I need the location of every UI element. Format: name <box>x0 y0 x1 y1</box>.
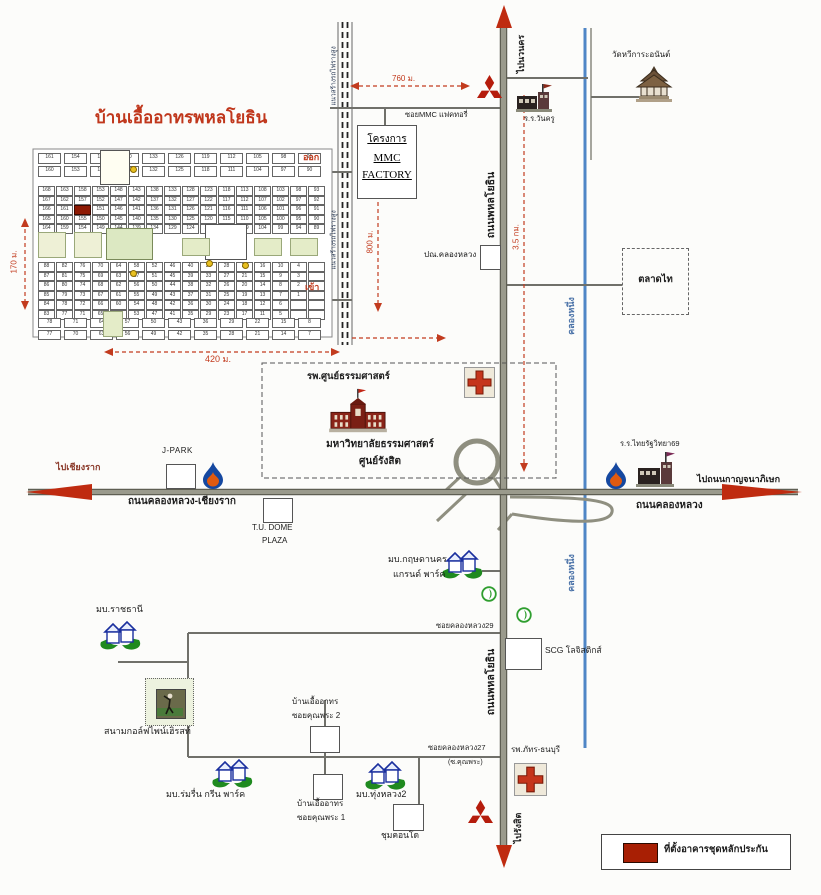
chum-condo-label: ชุมคอนโด <box>381 831 419 840</box>
estate-plot: 37 <box>182 291 199 301</box>
estate-plot: 21 <box>236 272 253 282</box>
estate-plot: 70 <box>92 262 109 272</box>
estate-plot: 60 <box>110 300 127 310</box>
estate-plot: 81 <box>56 272 73 282</box>
estate-plot: 92 <box>308 196 325 206</box>
estate-plot: 148 <box>110 186 127 196</box>
legend-swatch <box>623 843 658 863</box>
temple-icon <box>631 66 677 107</box>
estate-plot: 90 <box>308 215 325 225</box>
estate-plot: 96 <box>290 205 307 215</box>
tu-hospital-cross-icon <box>464 367 495 398</box>
estate-plot: 63 <box>110 272 127 282</box>
estate-plot: 166 <box>38 205 55 215</box>
khlongluang-chiangrak-label: ถนนคลองหลวง-เชียงราก <box>128 496 236 507</box>
estate-plot: 28 <box>218 262 235 272</box>
post-office-box <box>480 245 501 270</box>
estate-plot: 78 <box>56 300 73 310</box>
estate-park-block <box>106 228 153 260</box>
estate-plot: 105 <box>246 153 269 164</box>
estate-plot: 140 <box>128 215 145 225</box>
golf-course-box <box>145 678 194 726</box>
estate-plot: 78 <box>38 318 61 328</box>
estate-plot: 7 <box>298 330 321 340</box>
estate-plot: 125 <box>182 215 199 225</box>
map-canvas: 1611541471401331261191121059891160153146… <box>0 0 821 895</box>
estate-plot: 73 <box>74 291 91 301</box>
jpark-box <box>166 464 196 489</box>
estate-plot: 79 <box>56 291 73 301</box>
estate-plot: 50 <box>146 281 163 291</box>
soi-27-alt-label: (ซ.คุณพระ) <box>448 759 483 767</box>
estate-plot: 36 <box>194 318 217 328</box>
estate-plot: 28 <box>220 330 243 340</box>
estate-plot: 118 <box>218 186 235 196</box>
estate-plot: 32 <box>200 281 217 291</box>
estate-plot: 43 <box>168 318 191 328</box>
estate-green-block <box>290 238 318 256</box>
estate-plot: 125 <box>168 166 191 177</box>
estate-plot: 9 <box>272 272 289 282</box>
estate-plot: 110 <box>236 215 253 225</box>
estate-plot: 29 <box>220 318 243 328</box>
estate-plot: 8 <box>298 318 321 328</box>
estate-plot: 106 <box>254 205 271 215</box>
soi-27-label: ซอยคลองหลวง27 <box>428 744 486 752</box>
estate-plot: 158 <box>74 186 91 196</box>
estate-plot: 85 <box>38 291 55 301</box>
estate-green-block <box>38 232 66 258</box>
estate-title: บ้านเอื้ออาทรพหลโยธิน <box>95 109 267 128</box>
estate-plot: 168 <box>38 186 55 196</box>
temple-label: วัดหวีการะอนันต์ <box>612 51 670 60</box>
estate-plot: 120 <box>200 215 217 225</box>
krisda-label1: มบ.กฤษดานคร <box>388 555 447 565</box>
estate-plot: 137 <box>146 196 163 206</box>
thungluang-label: มบ.ทุ่งหลวง2 <box>356 790 406 800</box>
mmc-line2: MMC <box>358 152 416 164</box>
baan-eua2-label1: บ้านเอื้ออาทร <box>292 698 338 707</box>
estate-plot: 132 <box>142 166 165 177</box>
estate-yellow-dot <box>130 270 137 277</box>
ptt-station-icon <box>605 461 627 494</box>
estate-plot: 33 <box>200 272 217 282</box>
estate-entry-label: เข้า <box>305 283 319 293</box>
estate-plot: 131 <box>164 205 181 215</box>
ratchathani-village-icon <box>98 618 142 657</box>
tu-university-label1: มหาวิทยาลัยธรรมศาสตร์ <box>295 439 465 450</box>
baan-eua1-box <box>313 774 343 800</box>
estate-green-block <box>103 311 123 337</box>
estate-plot: 21 <box>246 330 269 340</box>
estate-plot: 154 <box>64 153 87 164</box>
soi-mmc-label: ซอยMMC แฟคทอรี่ <box>405 111 468 119</box>
estate-plot: 14 <box>272 330 295 340</box>
estate-plot: 54 <box>128 300 145 310</box>
to-rangsit-label: ไปรังสิต <box>514 813 524 844</box>
post-office-label: ปณ.คลองหลวง <box>424 251 476 260</box>
estate-plot: 94 <box>290 224 307 234</box>
estate-plot: 72 <box>74 300 91 310</box>
estate-plot: 74 <box>74 281 91 291</box>
estate-plot: 45 <box>164 272 181 282</box>
estate-plot: 25 <box>218 291 235 301</box>
estate-plot: 112 <box>220 153 243 164</box>
estate-plot: 93 <box>308 186 325 196</box>
romruen-label: มบ.ร่มรื่น กรีน พาร์ค <box>166 790 245 800</box>
tu-hospital-label: รพ.ศูนย์ธรรมศาสตร์ <box>307 372 390 382</box>
estate-plot: 40 <box>182 262 199 272</box>
estate-plot: 98 <box>290 186 307 196</box>
estate-plot: 62 <box>110 281 127 291</box>
estate-plot: 87 <box>38 272 55 282</box>
talad-thai-box: ตลาดไท <box>622 248 689 315</box>
estate-plot: 160 <box>38 166 61 177</box>
estate-plot: 130 <box>164 215 181 225</box>
tu-university-label2: ศูนย์รังสิต <box>295 456 465 467</box>
to-chiangrak-label: ไปเชียงราก <box>56 463 100 473</box>
tu-dome-box <box>263 498 293 523</box>
mmc-factory-box: โครงการ MMC FACTORY <box>357 125 417 199</box>
estate-plot: 99 <box>272 224 289 234</box>
estate-plot: 15 <box>254 272 271 282</box>
estate-yellow-dot <box>206 260 213 267</box>
estate-plot: 42 <box>168 330 191 340</box>
estate-plot: 8 <box>272 281 289 291</box>
estate-plot: 132 <box>164 196 181 206</box>
estate-plot: 20 <box>236 281 253 291</box>
estate-plot: 14 <box>254 281 271 291</box>
estate-plot: 15 <box>272 318 295 328</box>
estate-plot: 44 <box>164 281 181 291</box>
estate-plot: 98 <box>272 153 295 164</box>
phatara-hospital-label: รพ.ภัทร-ธนบุรี <box>511 746 560 755</box>
estate-plot: 18 <box>236 300 253 310</box>
estate-green-block <box>254 238 282 256</box>
estate-plot <box>308 262 325 272</box>
legend-box: ที่ตั้งอาคารชุดหลักประกัน <box>601 834 791 870</box>
bangchak-station-icon <box>516 607 532 628</box>
estate-plot: 146 <box>110 205 127 215</box>
to-navanakorn-label: ไปนวนคร <box>517 35 527 73</box>
estate-plot: 80 <box>56 281 73 291</box>
estate-plot: 6 <box>272 300 289 310</box>
estate-building-block <box>100 150 130 185</box>
estate-plot: 152 <box>92 196 109 206</box>
jpark-label: J-PARK <box>162 447 193 456</box>
estate-plot: 119 <box>194 153 217 164</box>
estate-plot: 35 <box>194 330 217 340</box>
estate-plot: 103 <box>272 186 289 196</box>
estate-plot: 112 <box>236 196 253 206</box>
krisda-label2: แกรนด์ พาร์ค <box>393 570 445 580</box>
estate-plot: 4 <box>290 262 307 272</box>
estate-plot <box>290 300 307 310</box>
estate-plot: 162 <box>56 196 73 206</box>
estate-plot: 155 <box>74 215 91 225</box>
estate-plot: 49 <box>142 330 165 340</box>
estate-plot: 111 <box>236 205 253 215</box>
estate-plot: 118 <box>194 166 217 177</box>
railway-label: แนวสร้างรถไฟรางสูง <box>330 46 337 105</box>
estate-plot: 30 <box>200 300 217 310</box>
khlongluang-road-label: ถนนคลองหลวง <box>636 500 703 511</box>
estate-plot: 64 <box>110 262 127 272</box>
scg-label: SCG โลจิสติกส์ <box>545 646 602 655</box>
dim-760-label: 760 ม. <box>392 75 415 84</box>
estate-plot: 82 <box>56 262 73 272</box>
estate-plot: 141 <box>128 205 145 215</box>
estate-plot: 90 <box>298 166 321 177</box>
estate-plot: 91 <box>308 205 325 215</box>
estate-plot: 46 <box>164 262 181 272</box>
estate-plot: 76 <box>74 262 91 272</box>
estate-plot: 102 <box>272 196 289 206</box>
estate-plot: 97 <box>290 196 307 206</box>
thairath-school-label: ร.ร.ไทยรัฐวิทยา69 <box>620 440 680 448</box>
estate-plot: 104 <box>246 166 269 177</box>
talad-thai-label: ตลาดไท <box>623 275 688 285</box>
estate-plot: 145 <box>110 215 127 225</box>
estate-plot: 121 <box>200 205 217 215</box>
estate-plot: 167 <box>38 196 55 206</box>
estate-plot: 12 <box>254 300 271 310</box>
estate-plot: 151 <box>92 205 109 215</box>
estate-plot: 126 <box>168 153 191 164</box>
phatara-hospital-cross-icon <box>514 763 547 796</box>
estate-plot: 51 <box>146 272 163 282</box>
estate-plot: 13 <box>254 291 271 301</box>
estate-green-block <box>182 238 210 256</box>
dim-800-label: 800 ม. <box>367 230 376 253</box>
estate-plot: 66 <box>92 300 109 310</box>
estate-yellow-dot <box>130 166 137 173</box>
collateral-plot-marker <box>74 205 91 215</box>
to-kanchanaphisek-label: ไปถนนกาญจนาภิเษก <box>697 475 780 485</box>
tu-dome-label1: T.U. DOME <box>252 524 292 533</box>
estate-plot: 43 <box>164 291 181 301</box>
ptt-station-icon <box>202 461 224 494</box>
soi-29-label: ซอยคลองหลวง29 <box>436 622 494 630</box>
ratchathani-label: มบ.ราชธานี <box>96 605 143 615</box>
estate-plot: 71 <box>64 318 87 328</box>
estate-plot: 133 <box>164 186 181 196</box>
estate-plot: 50 <box>142 318 165 328</box>
estate-plot: 24 <box>218 300 235 310</box>
estate-plot: 163 <box>56 186 73 196</box>
estate-plot: 7 <box>272 291 289 301</box>
arrow-south <box>496 845 512 868</box>
railway-line <box>338 22 352 345</box>
arrow-north <box>496 5 512 28</box>
estate-plot: 161 <box>38 153 61 164</box>
estate-green-block <box>74 232 102 258</box>
scg-box <box>505 638 542 670</box>
estate-plot: 105 <box>254 215 271 225</box>
bangchak-station-icon <box>481 586 497 607</box>
estate-plot: 70 <box>64 330 87 340</box>
railway-label: แนวสร้างรถไฟรางสูง <box>330 210 337 269</box>
estate-plot: 136 <box>146 205 163 215</box>
estate-height-label: 170 ม. <box>11 250 20 273</box>
tu-dome-label2: PLAZA <box>262 537 287 546</box>
estate-plot: 113 <box>236 186 253 196</box>
estate-plot: 19 <box>236 291 253 301</box>
phahonyothin-label: ถนนพหลโยธิน <box>486 649 498 715</box>
estate-plot: 89 <box>308 224 325 234</box>
estate-plot: 22 <box>246 318 269 328</box>
estate-plot: 27 <box>218 272 235 282</box>
golf-label: สนามกอล์ฟไพน์เฮิรสท์ <box>104 727 191 737</box>
estate-plot: 116 <box>218 205 235 215</box>
estate-plot: 150 <box>92 215 109 225</box>
mitsubishi-logo-icon <box>468 799 493 830</box>
estate-plot: 38 <box>182 281 199 291</box>
estate-plot: 111 <box>220 166 243 177</box>
estate-plot: 49 <box>146 291 163 301</box>
estate-plot: 100 <box>272 215 289 225</box>
thairath-school-icon <box>636 452 676 495</box>
estate-plot: 97 <box>272 166 295 177</box>
canal-label: คลองหนึ่ง <box>567 297 577 335</box>
estate-plot: 126 <box>182 205 199 215</box>
estate-plot: 31 <box>200 291 217 301</box>
wankru-school-label: ร.ร.วันครู <box>524 115 555 123</box>
phahonyothin-label: ถนนพหลโยธิน <box>486 172 498 238</box>
estate-plot: 84 <box>38 300 55 310</box>
estate-plot: 161 <box>56 205 73 215</box>
estate-plot: 67 <box>92 291 109 301</box>
canal-label: คลองหนึ่ง <box>567 554 577 592</box>
estate-plot: 16 <box>254 262 271 272</box>
estate-plot: 48 <box>146 300 163 310</box>
baan-eua2-label2: ซอยคุณพระ 2 <box>292 712 340 721</box>
mmc-line1: โครงการ <box>358 132 416 147</box>
estate-plot: 101 <box>272 205 289 215</box>
estate-plot <box>308 272 325 282</box>
estate-plot: 123 <box>200 186 217 196</box>
estate-plot: 88 <box>38 262 55 272</box>
estate-plot: 107 <box>254 196 271 206</box>
estate-plot: 68 <box>92 281 109 291</box>
estate-plot: 135 <box>146 215 163 225</box>
mmc-line3: FACTORY <box>358 169 416 181</box>
estate-plot: 165 <box>38 215 55 225</box>
estate-exit-label: ออก <box>303 153 319 163</box>
estate-plot: 61 <box>110 291 127 301</box>
chum-condo-box <box>393 804 424 831</box>
estate-plot <box>308 300 325 310</box>
estate-plot: 124 <box>182 224 199 234</box>
estate-plot: 26 <box>218 281 235 291</box>
estate-plot: 129 <box>164 224 181 234</box>
estate-plot: 157 <box>74 196 91 206</box>
baan-eua2-box <box>310 726 340 753</box>
legend-label: ที่ตั้งอาคารชุดหลักประกัน <box>664 845 768 855</box>
dim-35km-label: 3.5 กม. <box>513 224 522 250</box>
estate-plot: 77 <box>38 330 61 340</box>
estate-plot: 142 <box>128 196 145 206</box>
estate-width-label: 420 ม. <box>205 355 231 365</box>
estate-plot: 127 <box>182 196 199 206</box>
estate-plot: 143 <box>128 186 145 196</box>
arrow-west <box>26 484 92 500</box>
estate-plot: 133 <box>142 153 165 164</box>
estate-plot: 86 <box>38 281 55 291</box>
estate-plot: 95 <box>290 215 307 225</box>
estate-plot: 115 <box>218 215 235 225</box>
arrow-east <box>722 484 802 500</box>
estate-plot: 55 <box>128 291 145 301</box>
krisda-village-icon <box>440 547 484 586</box>
estate-plot: 153 <box>92 186 109 196</box>
estate-plot: 36 <box>182 300 199 310</box>
estate-plot: 128 <box>182 186 199 196</box>
golfer-icon <box>156 689 186 719</box>
estate-plot: 117 <box>218 196 235 206</box>
estate-plot: 147 <box>110 196 127 206</box>
estate-plot: 122 <box>200 196 217 206</box>
estate-building-block <box>205 224 247 260</box>
estate-plot: 75 <box>74 272 91 282</box>
estate-plot: 39 <box>182 272 199 282</box>
baan-eua1-label1: บ้านเอื้ออาทร <box>297 800 343 809</box>
estate-plot: 42 <box>164 300 181 310</box>
estate-plot: 3 <box>290 272 307 282</box>
estate-plot: 160 <box>56 215 73 225</box>
estate-yellow-dot <box>242 262 249 269</box>
mitsubishi-logo-icon <box>477 74 502 105</box>
estate-plot: 52 <box>146 262 163 272</box>
estate-plot: 153 <box>64 166 87 177</box>
baan-eua1-label2: ซอยคุณพระ 1 <box>297 814 345 823</box>
estate-plot: 108 <box>254 186 271 196</box>
university-building-icon <box>326 388 390 439</box>
estate-plot: 56 <box>128 281 145 291</box>
estate-plot: 104 <box>254 224 271 234</box>
estate-plot: 69 <box>92 272 109 282</box>
estate-plot: 10 <box>272 262 289 272</box>
estate-plot: 138 <box>146 186 163 196</box>
